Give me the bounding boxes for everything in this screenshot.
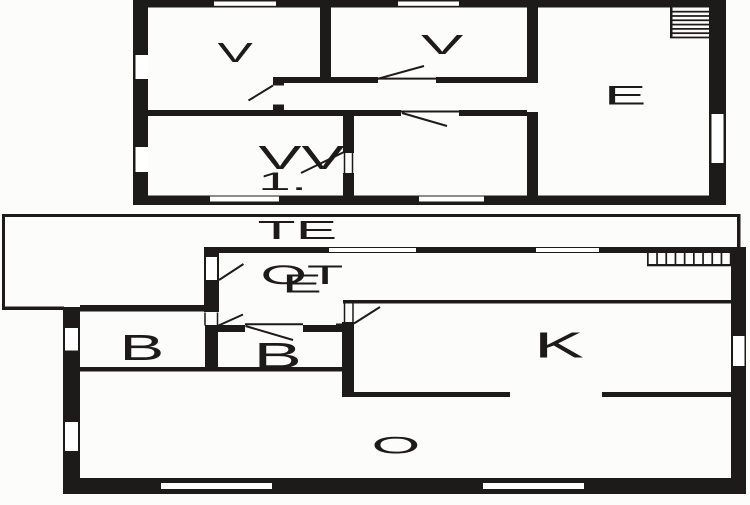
svg-text:TE: TE	[258, 216, 338, 245]
svg-text:V: V	[421, 30, 464, 60]
svg-text:1.: 1.	[258, 168, 307, 196]
svg-text:K: K	[534, 325, 584, 365]
svg-text:E: E	[282, 269, 322, 298]
svg-text:B: B	[254, 336, 302, 376]
svg-text:E: E	[604, 81, 646, 111]
svg-text:B: B	[120, 328, 165, 368]
svg-text:V: V	[218, 37, 253, 68]
svg-text:O: O	[372, 432, 421, 459]
